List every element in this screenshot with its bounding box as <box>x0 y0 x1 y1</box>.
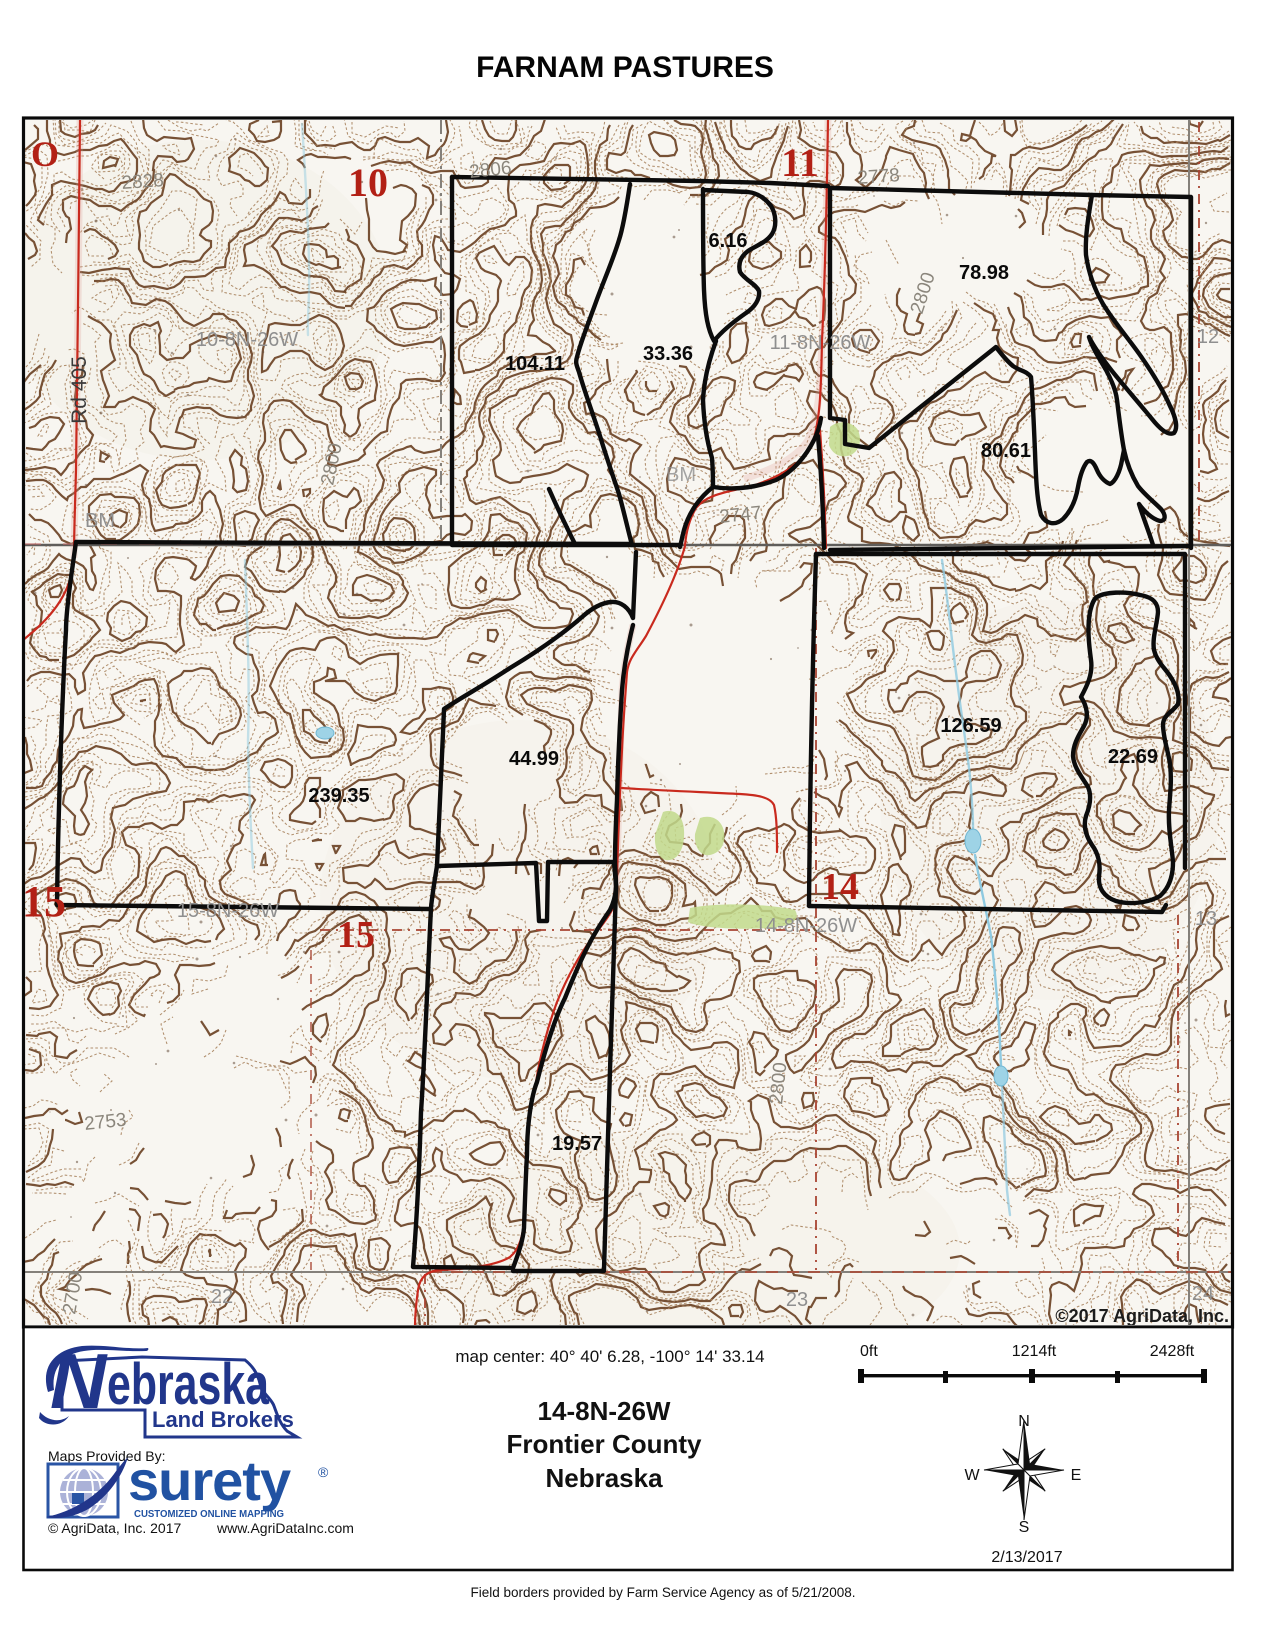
svg-text:14-8N-26W: 14-8N-26W <box>755 915 857 937</box>
svg-text:Field borders provided by Farm: Field borders provided by Farm Service A… <box>471 1585 856 1600</box>
svg-text:80.61: 80.61 <box>981 440 1031 462</box>
svg-text:12: 12 <box>1197 326 1219 348</box>
svg-text:23: 23 <box>786 1289 808 1311</box>
svg-text:BM: BM <box>85 510 115 532</box>
svg-text:© AgriData, Inc. 2017: © AgriData, Inc. 2017 <box>48 1520 181 1536</box>
svg-text:11-8N-26W: 11-8N-26W <box>770 332 871 354</box>
svg-text:13: 13 <box>1195 908 1217 930</box>
svg-text:S: S <box>1019 1519 1030 1536</box>
svg-text:map center: 40° 40' 6.28, -10: map center: 40° 40' 6.28, -100° 14' 33.1… <box>455 1347 764 1366</box>
svg-text:CUSTOMIZED ONLINE MAPPING: CUSTOMIZED ONLINE MAPPING <box>134 1508 284 1520</box>
svg-text:22.69: 22.69 <box>1108 746 1158 768</box>
svg-text:0ft: 0ft <box>860 1343 878 1360</box>
svg-text:2800: 2800 <box>766 1061 791 1105</box>
svg-text:Rd 405: Rd 405 <box>68 356 91 424</box>
svg-text:10-8N-26W: 10-8N-26W <box>196 329 298 351</box>
svg-text:Nebraska: Nebraska <box>545 1463 663 1493</box>
svg-text:Frontier County: Frontier County <box>507 1429 703 1459</box>
svg-text:44.99: 44.99 <box>509 748 559 770</box>
svg-text:15: 15 <box>337 914 375 956</box>
svg-text:©2017 AgriData, Inc.: ©2017 AgriData, Inc. <box>1055 1306 1229 1326</box>
svg-text:19.57: 19.57 <box>552 1133 602 1155</box>
svg-text:2778: 2778 <box>857 165 901 189</box>
svg-text:2753: 2753 <box>83 1110 127 1135</box>
svg-text:W: W <box>964 1467 980 1484</box>
svg-text:15: 15 <box>22 877 66 926</box>
svg-text:239.35: 239.35 <box>308 785 369 807</box>
svg-text:78.98: 78.98 <box>959 262 1009 284</box>
svg-text:2/13/2017: 2/13/2017 <box>991 1549 1062 1566</box>
svg-text:2828: 2828 <box>121 170 165 194</box>
svg-text:surety: surety <box>128 1449 291 1512</box>
svg-text:126.59: 126.59 <box>940 715 1001 737</box>
svg-text:14: 14 <box>821 866 859 908</box>
svg-text:E: E <box>1071 1467 1082 1484</box>
svg-text:15-8N-26W: 15-8N-26W <box>177 900 279 922</box>
svg-text:104.11: 104.11 <box>505 353 565 375</box>
svg-text:1214ft: 1214ft <box>1012 1343 1057 1360</box>
svg-text:www.AgriDataInc.com: www.AgriDataInc.com <box>216 1520 354 1536</box>
svg-text:24: 24 <box>1192 1283 1214 1305</box>
svg-text:BM: BM <box>666 464 696 486</box>
svg-text:14-8N-26W: 14-8N-26W <box>538 1396 671 1426</box>
svg-text:22: 22 <box>211 1286 233 1308</box>
svg-text:10: 10 <box>348 160 388 205</box>
svg-text:2747: 2747 <box>718 503 762 528</box>
svg-text:2428ft: 2428ft <box>1150 1343 1195 1360</box>
svg-text:O: O <box>31 134 59 174</box>
svg-text:Land Brokers: Land Brokers <box>152 1407 294 1432</box>
svg-text:®: ® <box>318 1464 329 1480</box>
svg-text:2806: 2806 <box>468 158 512 183</box>
svg-text:33.36: 33.36 <box>643 343 693 365</box>
svg-text:11: 11 <box>781 140 819 185</box>
svg-text:6.16: 6.16 <box>709 230 748 252</box>
svg-text:FARNAM PASTURES: FARNAM PASTURES <box>476 51 774 84</box>
